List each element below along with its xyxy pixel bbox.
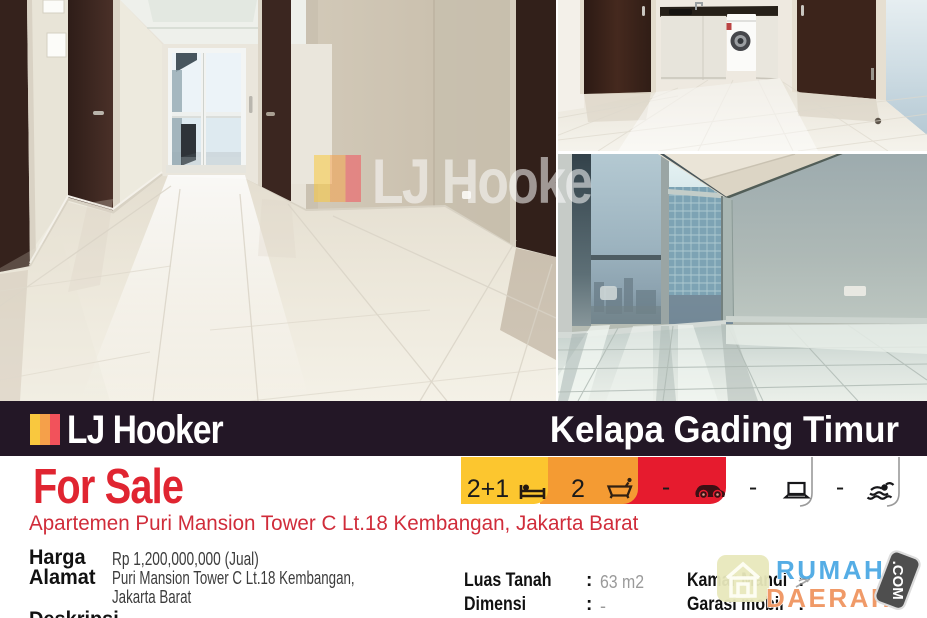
svg-text:RUMAH: RUMAH [776,555,885,585]
svg-text:DAERAH: DAERAH [766,583,892,613]
svg-text:.COM: .COM [889,561,906,600]
